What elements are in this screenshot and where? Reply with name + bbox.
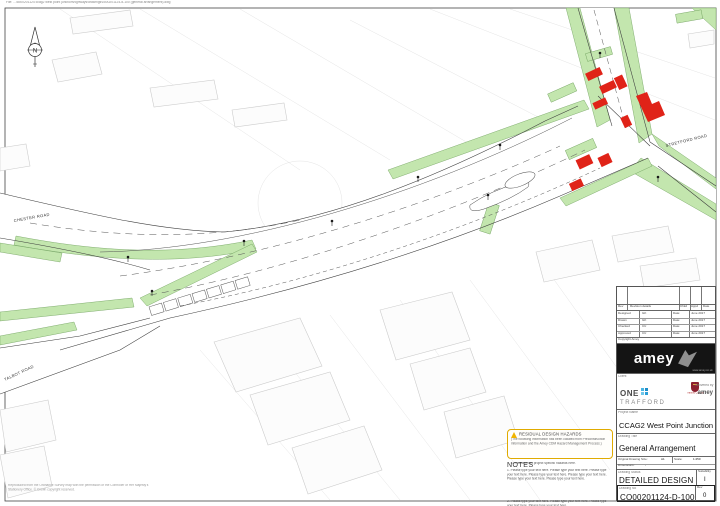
trafford-mosaic-icon — [641, 388, 648, 395]
rev-cell: Rev 0 — [695, 486, 714, 501]
amey-logo-block: amey www.amey.co.uk — [617, 343, 715, 373]
signoff-role: Checked — [618, 325, 630, 328]
signoff-date-label: Date: — [673, 312, 680, 315]
client-label: Client — [618, 375, 626, 378]
notes-title: NOTES — [507, 462, 613, 469]
amey-mark-icon — [678, 350, 698, 368]
signoff-role: Designed — [618, 312, 631, 315]
drawing-title-block: Drawing Title General Arrangement — [617, 433, 715, 456]
amey-url: www.amey.co.uk — [693, 369, 713, 372]
size-value: A1 — [661, 458, 665, 461]
chkd-col-label: Chkd — [680, 305, 687, 308]
dimensions-value: - — [645, 464, 646, 467]
note-item: 2. Please type your text here. Please ty… — [507, 500, 613, 506]
drawing-number-block: Drawing No CO00201124-D-100 Rev 0 — [617, 485, 715, 502]
note-item: 1. Please type your text here. Please ty… — [507, 469, 613, 481]
scale-value: 1:250 — [693, 458, 701, 461]
signoff-role: Drawn — [618, 319, 627, 322]
drawing-number: CO00201124-D-100 — [620, 493, 695, 502]
residual-hazards-box: RESIDUAL DESIGN HAZARDS (The following i… — [507, 429, 613, 459]
client-block: Client ONE TRAFFORD Trafford Council del… — [617, 373, 715, 409]
north-arrow: N — [27, 27, 43, 67]
suitability-cell: Suitability I — [696, 470, 715, 485]
warning-triangle-icon — [511, 432, 517, 438]
signoff-date: June 2017 — [691, 319, 705, 322]
signoff-date-label: Date: — [673, 332, 680, 335]
signoff-date: June 2017 — [691, 325, 705, 328]
date-col-label: Date — [703, 305, 709, 308]
rev-value: 0 — [703, 493, 706, 499]
one-trafford-logo: ONE TRAFFORD — [620, 383, 665, 406]
drawing-status-block: Drawing Status DETAILED DESIGN Suitabili… — [617, 469, 715, 485]
suitability-value: I — [704, 477, 706, 483]
signoff-table: Designed GK Date: June 2017 Drawn GK Dat… — [617, 310, 715, 337]
signoff-date-label: Date: — [673, 319, 680, 322]
hazards-title: RESIDUAL DESIGN HAZARDS — [519, 432, 582, 436]
delivered-by-amey: delivered by amey — [681, 384, 713, 396]
signoff-date: June 2017 — [691, 332, 705, 335]
details-col-label: Revision details — [630, 305, 651, 308]
revision-table-empty — [617, 287, 715, 304]
notes-panel: NOTES 1. Please type your text here. Ple… — [507, 462, 613, 506]
signoff-initials: GK — [642, 319, 646, 322]
drawing-sheet: N CHESTER ROAD TALBOT ROAD STRETFORD ROA… — [0, 0, 720, 506]
size-scale-block: Original Drawing Size: A1 Scale: 1:250 D… — [617, 456, 715, 469]
drawing-status: DETAILED DESIGN — [619, 476, 693, 485]
os-copyright-note: Reproduced from the Ordnance Survey map … — [8, 484, 158, 499]
hazards-intro: (The following information has been coll… — [511, 438, 609, 446]
signoff-date: June 2017 — [691, 312, 705, 315]
signoff-initials: GK — [642, 312, 646, 315]
signoff-initials: CU — [642, 325, 646, 328]
amey-wordmark: amey — [634, 350, 674, 367]
road-label-stretford: STRETFORD ROAD — [665, 133, 708, 148]
appd-col-label: Appd — [691, 305, 698, 308]
title-block: Rev Revision details Chkd Appd Date Desi… — [616, 286, 716, 501]
project-name: CCAG2 West Point Junction — [619, 421, 713, 430]
signoff-role: Approved — [618, 332, 631, 335]
project-name-block: Project Name CCAG2 West Point Junction — [617, 409, 715, 433]
signoff-date-label: Date: — [673, 325, 680, 328]
north-label: N — [33, 49, 37, 55]
drawing-title: General Arrangement — [619, 444, 696, 453]
rev-col-label: Rev — [618, 305, 623, 308]
signoff-initials: CU — [642, 332, 646, 335]
file-path-text: File: ...\co00201124 ccag2 west point ju… — [6, 1, 281, 4]
crossing-green-1 — [548, 83, 577, 103]
